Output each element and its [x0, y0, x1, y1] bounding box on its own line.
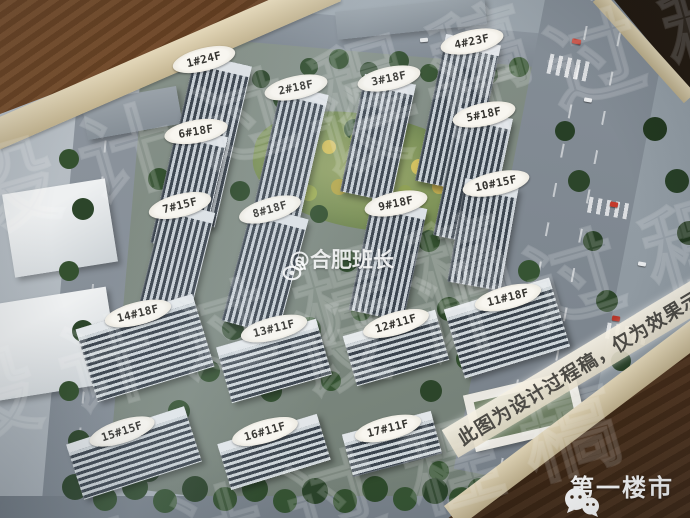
- car-white: [638, 261, 647, 266]
- bottom-road: [0, 496, 520, 518]
- site-model-photo: 设计过程稿 设计过程稿 设计过程稿 设计过程稿 设计过程稿 1#24F 2#18…: [0, 0, 690, 518]
- offsite-building: [2, 178, 118, 277]
- brand-watermark: 第一楼市: [562, 468, 674, 503]
- car-white: [420, 38, 428, 43]
- car-red: [612, 315, 621, 321]
- weibo-watermark: @合肥班长: [282, 244, 394, 274]
